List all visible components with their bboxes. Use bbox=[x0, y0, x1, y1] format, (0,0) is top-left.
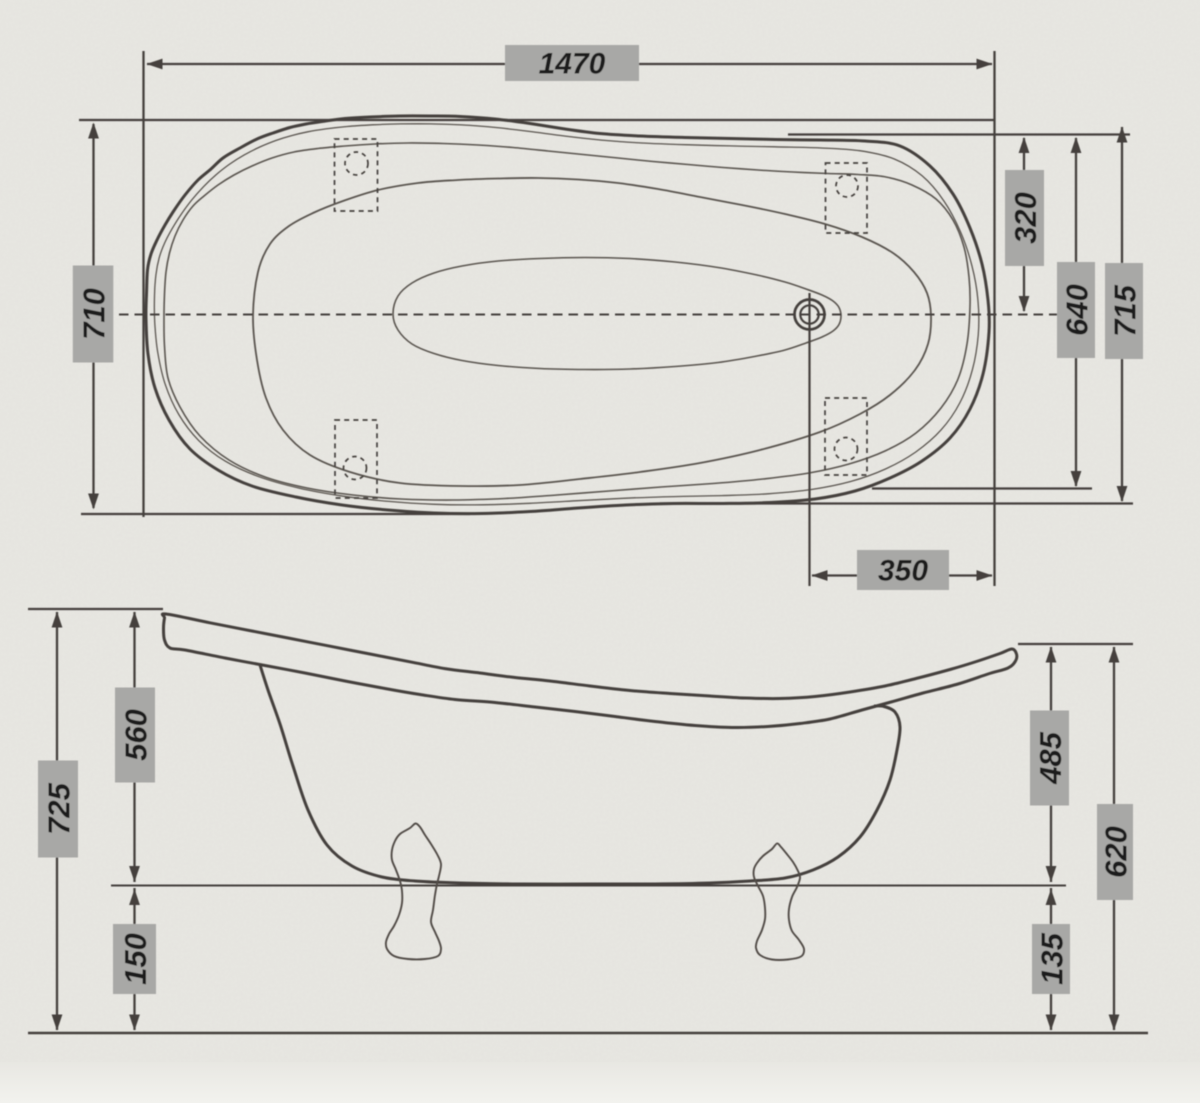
svg-text:150: 150 bbox=[118, 933, 153, 985]
svg-text:710: 710 bbox=[77, 288, 112, 340]
svg-text:135: 135 bbox=[1035, 932, 1070, 984]
svg-text:725: 725 bbox=[42, 782, 77, 834]
svg-text:620: 620 bbox=[1099, 826, 1134, 878]
svg-text:640: 640 bbox=[1060, 284, 1095, 336]
svg-text:350: 350 bbox=[878, 555, 928, 588]
svg-text:1470: 1470 bbox=[539, 48, 606, 81]
svg-text:560: 560 bbox=[119, 709, 154, 761]
svg-text:320: 320 bbox=[1008, 192, 1043, 244]
svg-text:715: 715 bbox=[1108, 284, 1143, 336]
svg-text:485: 485 bbox=[1033, 731, 1068, 784]
